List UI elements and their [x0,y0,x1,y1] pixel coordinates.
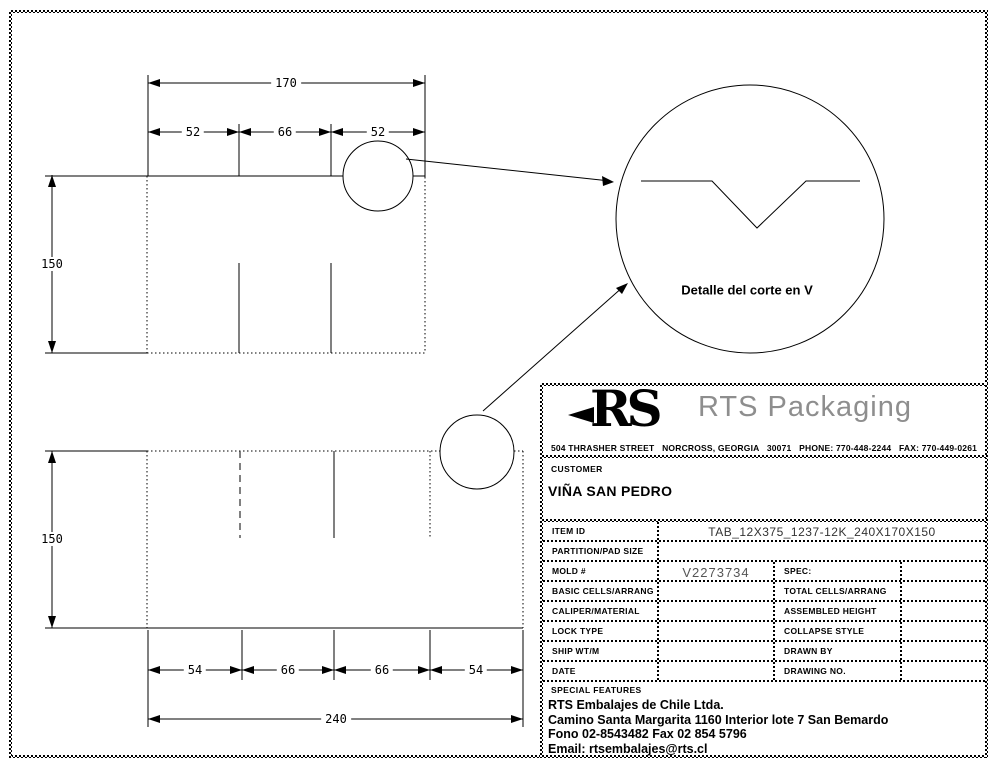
table-row: DATE DRAWING NO. [543,662,985,682]
leader-arrow-top [602,176,614,186]
dim-bottom-segment-2: 66 [277,663,299,677]
top-view-arrowheads [48,79,425,353]
row-value [657,582,773,600]
dim-top-segment-3: 52 [367,125,389,139]
row-label-2: TOTAL CELLS/ARRANG [773,582,900,600]
drawing-sheet: 170 52 66 52 150 150 54 66 66 54 240 Det… [0,0,1000,770]
row-value-2 [900,562,985,580]
row-label: BASIC CELLS/ARRANG [543,582,657,600]
spec-table: ITEM ID TAB_12X375_1237-12K_240X170X150 … [543,522,985,682]
company-footer: RTS Embalajes de Chile Ltda. Camino Sant… [548,698,888,756]
customer-label: CUSTOMER [551,464,603,474]
table-row: PARTITION/PAD SIZE [543,542,985,562]
row-value-2 [900,642,985,660]
row-label-2: ASSEMBLED HEIGHT [773,602,900,620]
top-view-linework [45,75,425,353]
footer-line: Camino Santa Margarita 1160 Interior lot… [548,713,888,728]
detail-circle [616,85,884,353]
row-label: ITEM ID [543,522,657,540]
bottom-view-arrowheads [48,451,523,723]
table-row: ITEM ID TAB_12X375_1237-12K_240X170X150 [543,522,985,542]
dim-bottom-segment-3: 66 [371,663,393,677]
footer-line: Email: rtsembalajes@rts.cl [548,742,888,757]
row-value: TAB_12X375_1237-12K_240X170X150 [657,522,985,540]
leader-arrow-bottom [616,283,628,294]
row-value-2 [900,582,985,600]
dim-bottom-total-width: 240 [321,712,351,726]
special-features-label: SPECIAL FEATURES [551,685,642,695]
row-value-2 [900,622,985,640]
row-label-2: DRAWING NO. [773,662,900,680]
row-label: SHIP WT/M [543,642,657,660]
table-row: SHIP WT/M DRAWN BY [543,642,985,662]
row-label: PARTITION/PAD SIZE [543,542,657,560]
bottom-view-linework [45,415,523,727]
row-label: DATE [543,662,657,680]
logo-monogram: RS [590,379,658,439]
row-value: V2273734 [657,562,773,580]
row-label: LOCK TYPE [543,622,657,640]
dim-top-height: 150 [37,257,67,271]
callout-circle-bottom [440,415,514,489]
detail-caption: Detalle del corte en V [681,283,813,298]
table-row: CALIPER/MATERIAL ASSEMBLED HEIGHT [543,602,985,622]
row-value-2 [900,662,985,680]
table-row: BASIC CELLS/ARRANG TOTAL CELLS/ARRANG [543,582,985,602]
dim-top-total-width: 170 [271,76,301,90]
row-value [657,602,773,620]
row-value-2 [900,602,985,620]
callout-circle-top [343,141,413,211]
row-label-2: SPEC: [773,562,900,580]
dim-bottom-segment-4: 54 [465,663,487,677]
rts-logo: RS RTS Packaging [540,383,988,443]
footer-line: RTS Embalajes de Chile Ltda. [548,698,888,713]
brand-name: RTS Packaging [698,391,912,424]
row-value [657,622,773,640]
leader-line-top [406,159,610,181]
row-label-2: COLLAPSE STYLE [773,622,900,640]
tb-header-separator [540,455,988,458]
row-label-2: DRAWN BY [773,642,900,660]
dim-bottom-height: 150 [37,532,67,546]
dim-bottom-segment-1: 54 [184,663,206,677]
detail-view-linework [406,85,884,411]
row-label: CALIPER/MATERIAL [543,602,657,620]
row-value [657,542,985,560]
footer-line: Fono 02-8543482 Fax 02 854 5796 [548,727,888,742]
row-value [657,642,773,660]
title-block: RS RTS Packaging 504 THRASHER STREET NOR… [540,383,988,758]
customer-name: VIÑA SAN PEDRO [548,483,672,499]
company-address: 504 THRASHER STREET NORCROSS, GEORGIA 30… [540,443,988,453]
table-row: MOLD # V2273734 SPEC: [543,562,985,582]
table-row: LOCK TYPE COLLAPSE STYLE [543,622,985,642]
dim-top-segment-2: 66 [274,125,296,139]
row-label: MOLD # [543,562,657,580]
row-value [657,662,773,680]
dim-top-segment-1: 52 [182,125,204,139]
